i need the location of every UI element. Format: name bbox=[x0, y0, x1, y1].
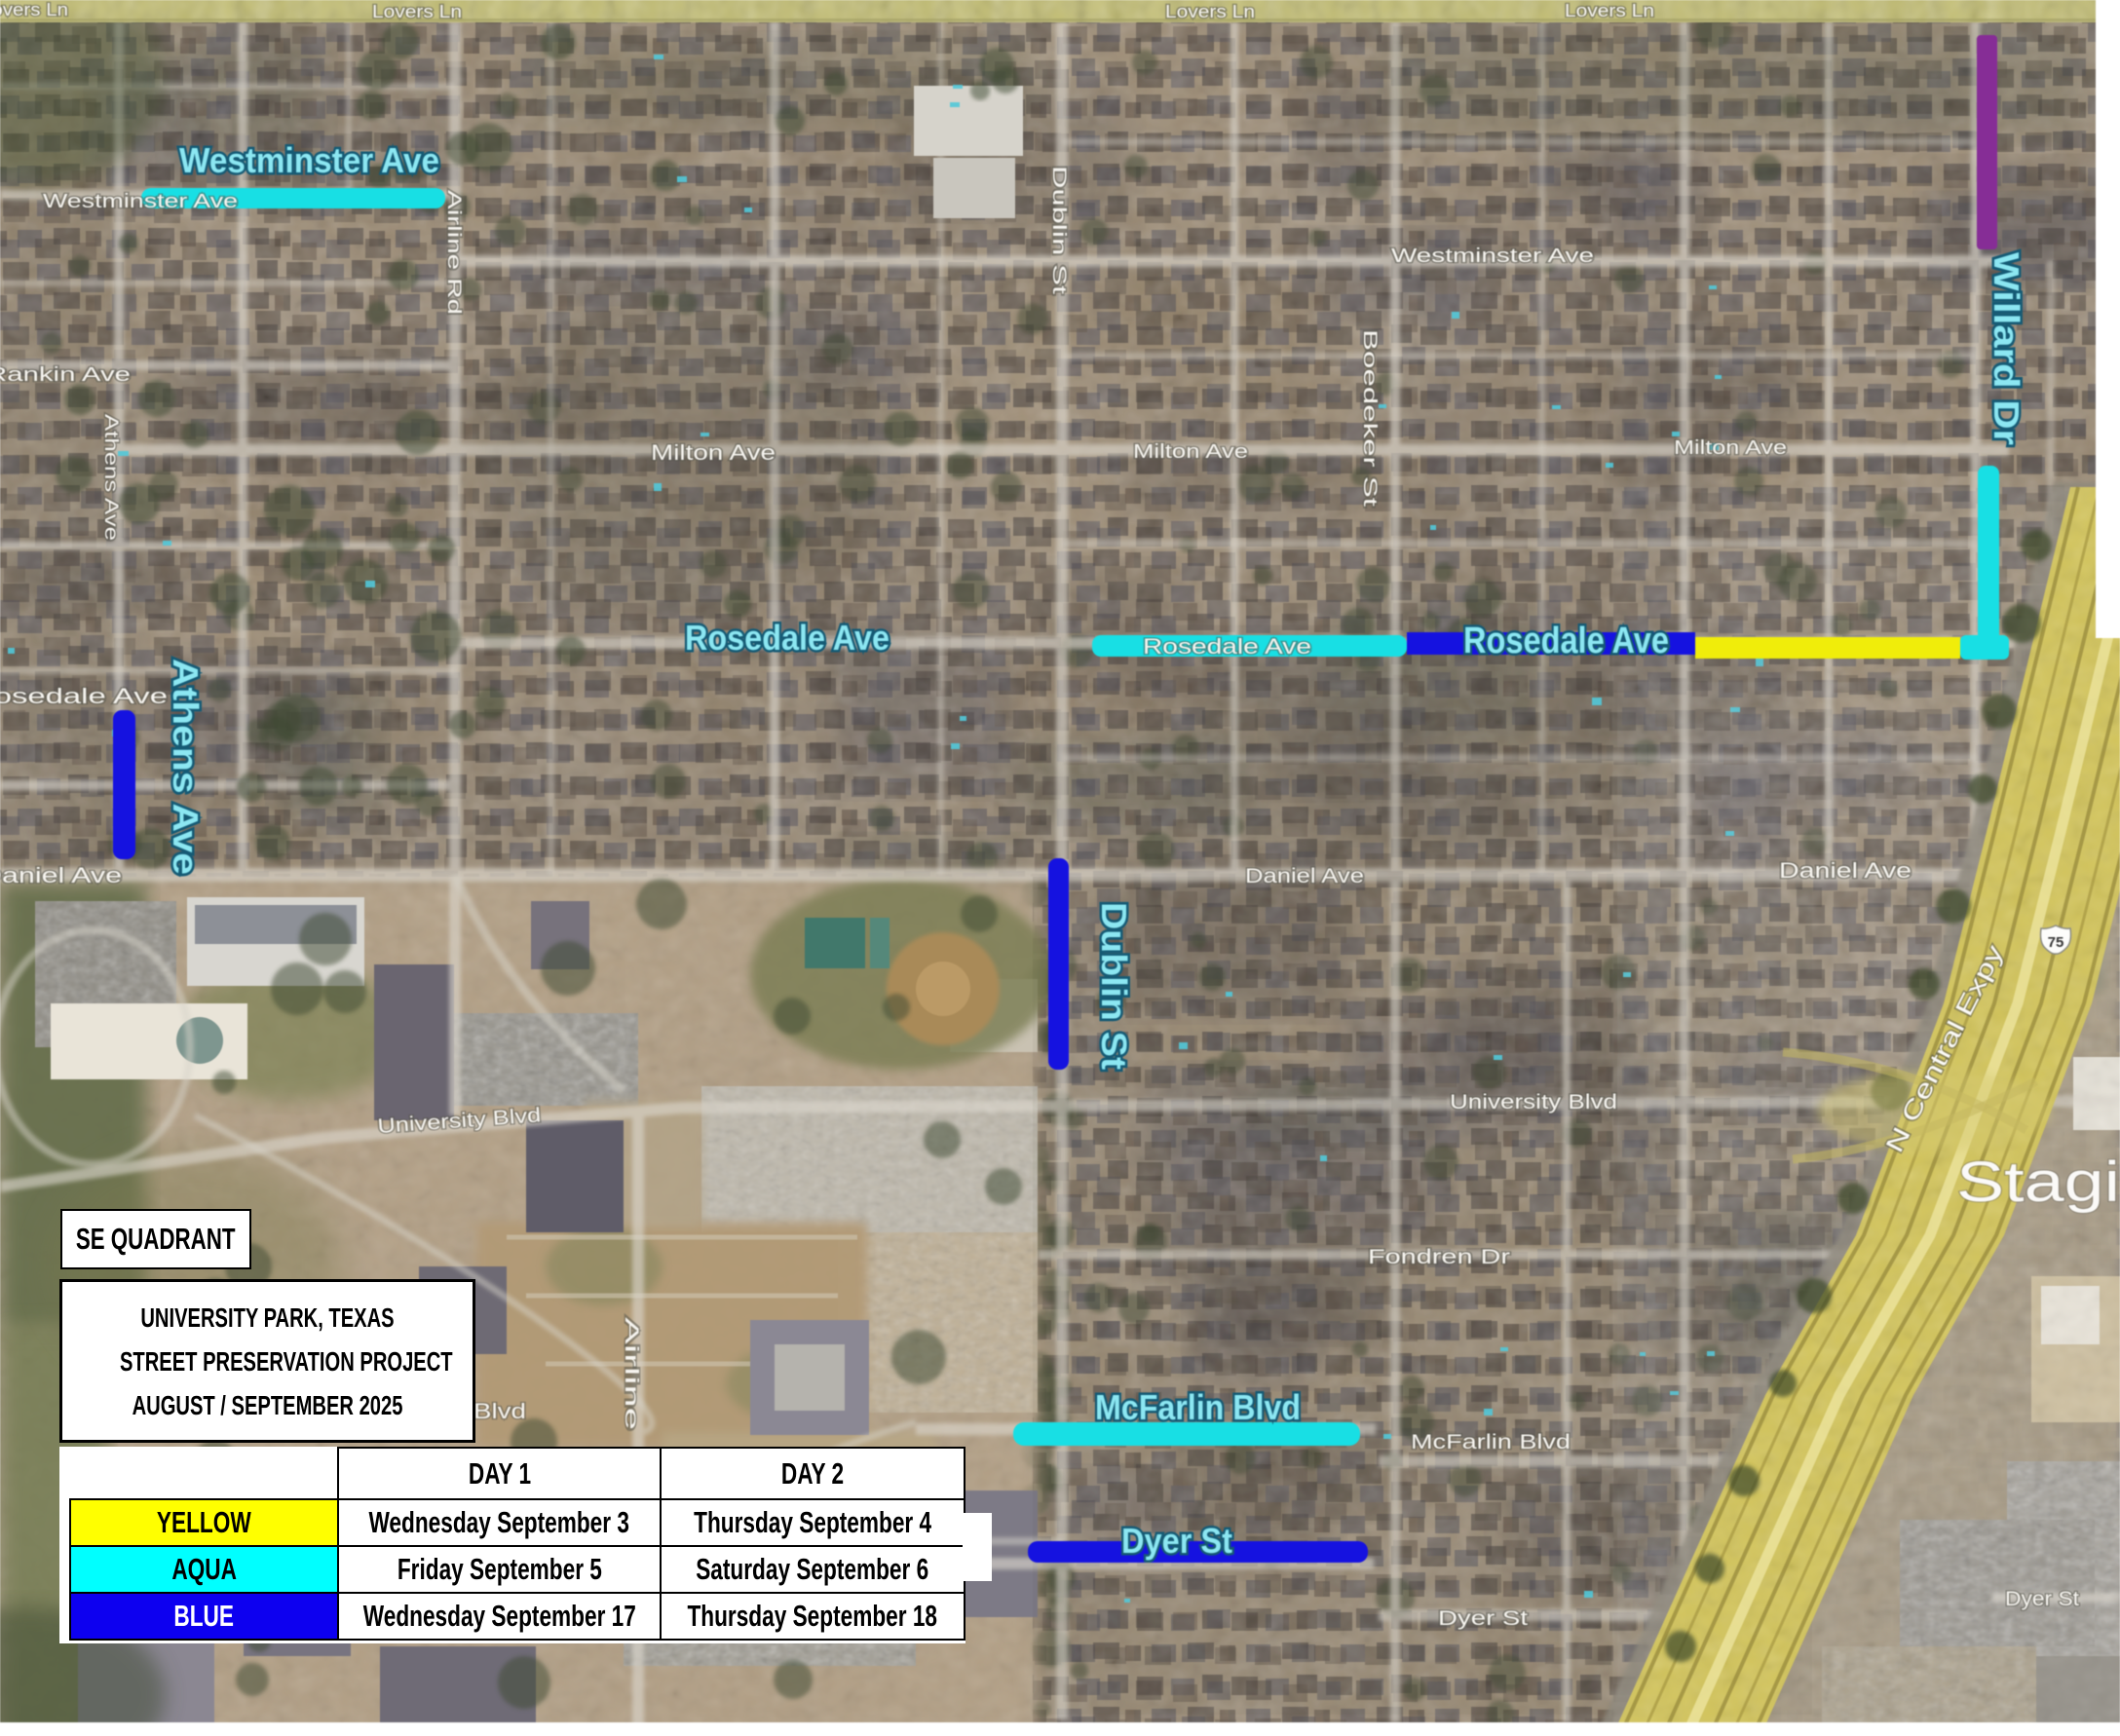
svg-text:Rosedale Ave: Rosedale Ave bbox=[1463, 621, 1669, 661]
svg-text:Dyer St: Dyer St bbox=[1121, 1521, 1232, 1561]
svg-text:Westminster Ave: Westminster Ave bbox=[43, 191, 238, 212]
svg-text:Rankin Ave: Rankin Ave bbox=[0, 364, 131, 386]
svg-text:Airline: Airline bbox=[621, 1317, 641, 1430]
svg-text:Milton Ave: Milton Ave bbox=[1133, 441, 1248, 463]
svg-text:Athens Ave: Athens Ave bbox=[166, 659, 206, 875]
svg-text:Airline Rd: Airline Rd bbox=[443, 190, 464, 315]
svg-text:Athens Ave: Athens Ave bbox=[100, 414, 121, 541]
svg-text:Willard Dr: Willard Dr bbox=[1987, 252, 2026, 445]
svg-text:University Blvd: University Blvd bbox=[1450, 1091, 1617, 1113]
svg-text:Rosedale Ave: Rosedale Ave bbox=[685, 618, 890, 658]
svg-text:Lovers Ln: Lovers Ln bbox=[0, 0, 68, 19]
svg-text:Fondren Dr: Fondren Dr bbox=[1368, 1246, 1510, 1268]
svg-text:Dublin St: Dublin St bbox=[1048, 166, 1069, 295]
svg-text:McFarlin Blvd: McFarlin Blvd bbox=[1411, 1431, 1571, 1453]
svg-text:Dyer St: Dyer St bbox=[1438, 1607, 1528, 1630]
svg-text:Daniel Ave: Daniel Ave bbox=[1779, 858, 1912, 883]
svg-text:Boedeker St: Boedeker St bbox=[1359, 329, 1380, 508]
svg-text:Lovers Ln: Lovers Ln bbox=[1165, 2, 1255, 21]
svg-text:Daniel Ave: Daniel Ave bbox=[0, 863, 122, 887]
svg-text:Stagi: Stagi bbox=[1956, 1151, 2120, 1214]
svg-text:Rosedale Ave: Rosedale Ave bbox=[1143, 634, 1311, 659]
svg-text:Westminster Ave: Westminster Ave bbox=[179, 140, 439, 180]
svg-text:Milton Ave: Milton Ave bbox=[1674, 437, 1787, 459]
svg-text:Dublin St: Dublin St bbox=[1094, 902, 1134, 1070]
svg-text:Dyer St: Dyer St bbox=[2005, 1588, 2079, 1610]
svg-text:Blvd: Blvd bbox=[473, 1399, 526, 1423]
svg-text:McFarlin Blvd: McFarlin Blvd bbox=[1095, 1387, 1301, 1427]
svg-text:Rosedale Ave: Rosedale Ave bbox=[0, 684, 168, 708]
svg-text:Lovers Ln: Lovers Ln bbox=[1565, 1, 1654, 20]
svg-text:Milton Ave: Milton Ave bbox=[651, 440, 776, 465]
svg-text:Lovers Ln: Lovers Ln bbox=[372, 2, 462, 21]
svg-text:Daniel Ave: Daniel Ave bbox=[1245, 865, 1364, 887]
svg-text:Westminster Ave: Westminster Ave bbox=[1391, 245, 1594, 267]
svg-text:75: 75 bbox=[2048, 934, 2064, 951]
